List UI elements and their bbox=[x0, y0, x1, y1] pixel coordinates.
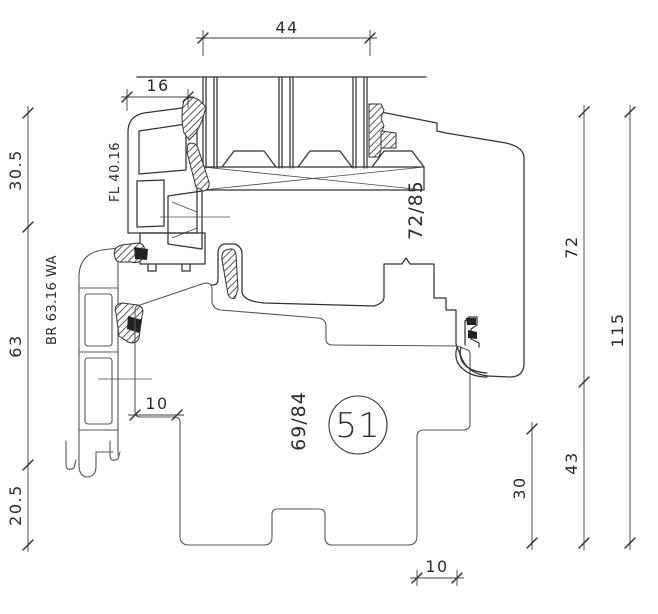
frame-profile bbox=[135, 283, 487, 545]
dim-label-115: 115 bbox=[608, 312, 627, 347]
clip-blob bbox=[134, 247, 148, 260]
detail-marker: 51 bbox=[329, 396, 387, 454]
dim-label-bottom-step: 10 bbox=[425, 557, 448, 576]
dim-label-frame-step: 10 bbox=[145, 394, 168, 413]
leg-gasket-blob bbox=[466, 318, 476, 325]
technical-drawing-canvas: 51 FL 40.16 BR 63.16 WA 72/85 69/84 44 1… bbox=[0, 0, 658, 614]
dim-label-bead-width: 16 bbox=[146, 76, 169, 95]
dim-label-43: 43 bbox=[562, 451, 581, 474]
glass-pane bbox=[203, 77, 217, 168]
foot bbox=[148, 264, 156, 271]
sash-flipper-gasket bbox=[222, 249, 238, 299]
dimension-bottom-step: 10 bbox=[410, 557, 464, 586]
sash-glazing-gasket bbox=[369, 104, 384, 157]
glass-pane bbox=[279, 77, 293, 168]
label-frame: 69/84 bbox=[288, 391, 310, 451]
label-sash: 72/85 bbox=[405, 180, 427, 240]
overlap-gasket bbox=[460, 347, 487, 373]
marker-number: 51 bbox=[335, 406, 380, 446]
foot bbox=[182, 264, 190, 271]
dimension-right-chain: 72 43 bbox=[562, 105, 589, 550]
window-section-drawing: 51 FL 40.16 BR 63.16 WA 72/85 69/84 44 1… bbox=[0, 0, 658, 614]
spacer bbox=[298, 151, 352, 167]
dim-label-30: 30 bbox=[510, 476, 529, 499]
extension-chamber bbox=[85, 294, 112, 346]
label-extension-profile: BR 63.16 WA bbox=[45, 255, 60, 345]
setting-block bbox=[203, 167, 424, 190]
dim-label-63: 63 bbox=[6, 334, 25, 357]
extension-chamber bbox=[85, 358, 112, 424]
glass-pane bbox=[353, 77, 367, 168]
dim-label-30-5: 30.5 bbox=[6, 149, 25, 191]
dimension-total-height: 115 bbox=[608, 105, 635, 550]
spacer bbox=[222, 151, 276, 167]
dimension-left-chain: 30.5 63 20.5 bbox=[6, 106, 33, 552]
dimensions: 44 16 30.5 63 20.5 72 bbox=[6, 18, 635, 586]
dim-label-20-5: 20.5 bbox=[6, 484, 25, 526]
label-glazing-bead: FL 40.16 bbox=[108, 142, 123, 202]
sash-glazing-gasket-arm bbox=[381, 131, 396, 148]
bead-chamber bbox=[139, 124, 186, 174]
bead-chamber bbox=[137, 180, 164, 227]
extension-profile bbox=[66, 243, 152, 477]
dim-label-glass-width: 44 bbox=[275, 18, 298, 37]
dim-label-72: 72 bbox=[562, 235, 581, 258]
dimension-step-height: 30 bbox=[510, 422, 537, 550]
sash-profile bbox=[212, 104, 524, 377]
drip-hook bbox=[66, 441, 76, 469]
dimension-glass-width: 44 bbox=[196, 18, 377, 56]
leg-gasket-blob bbox=[468, 330, 477, 339]
